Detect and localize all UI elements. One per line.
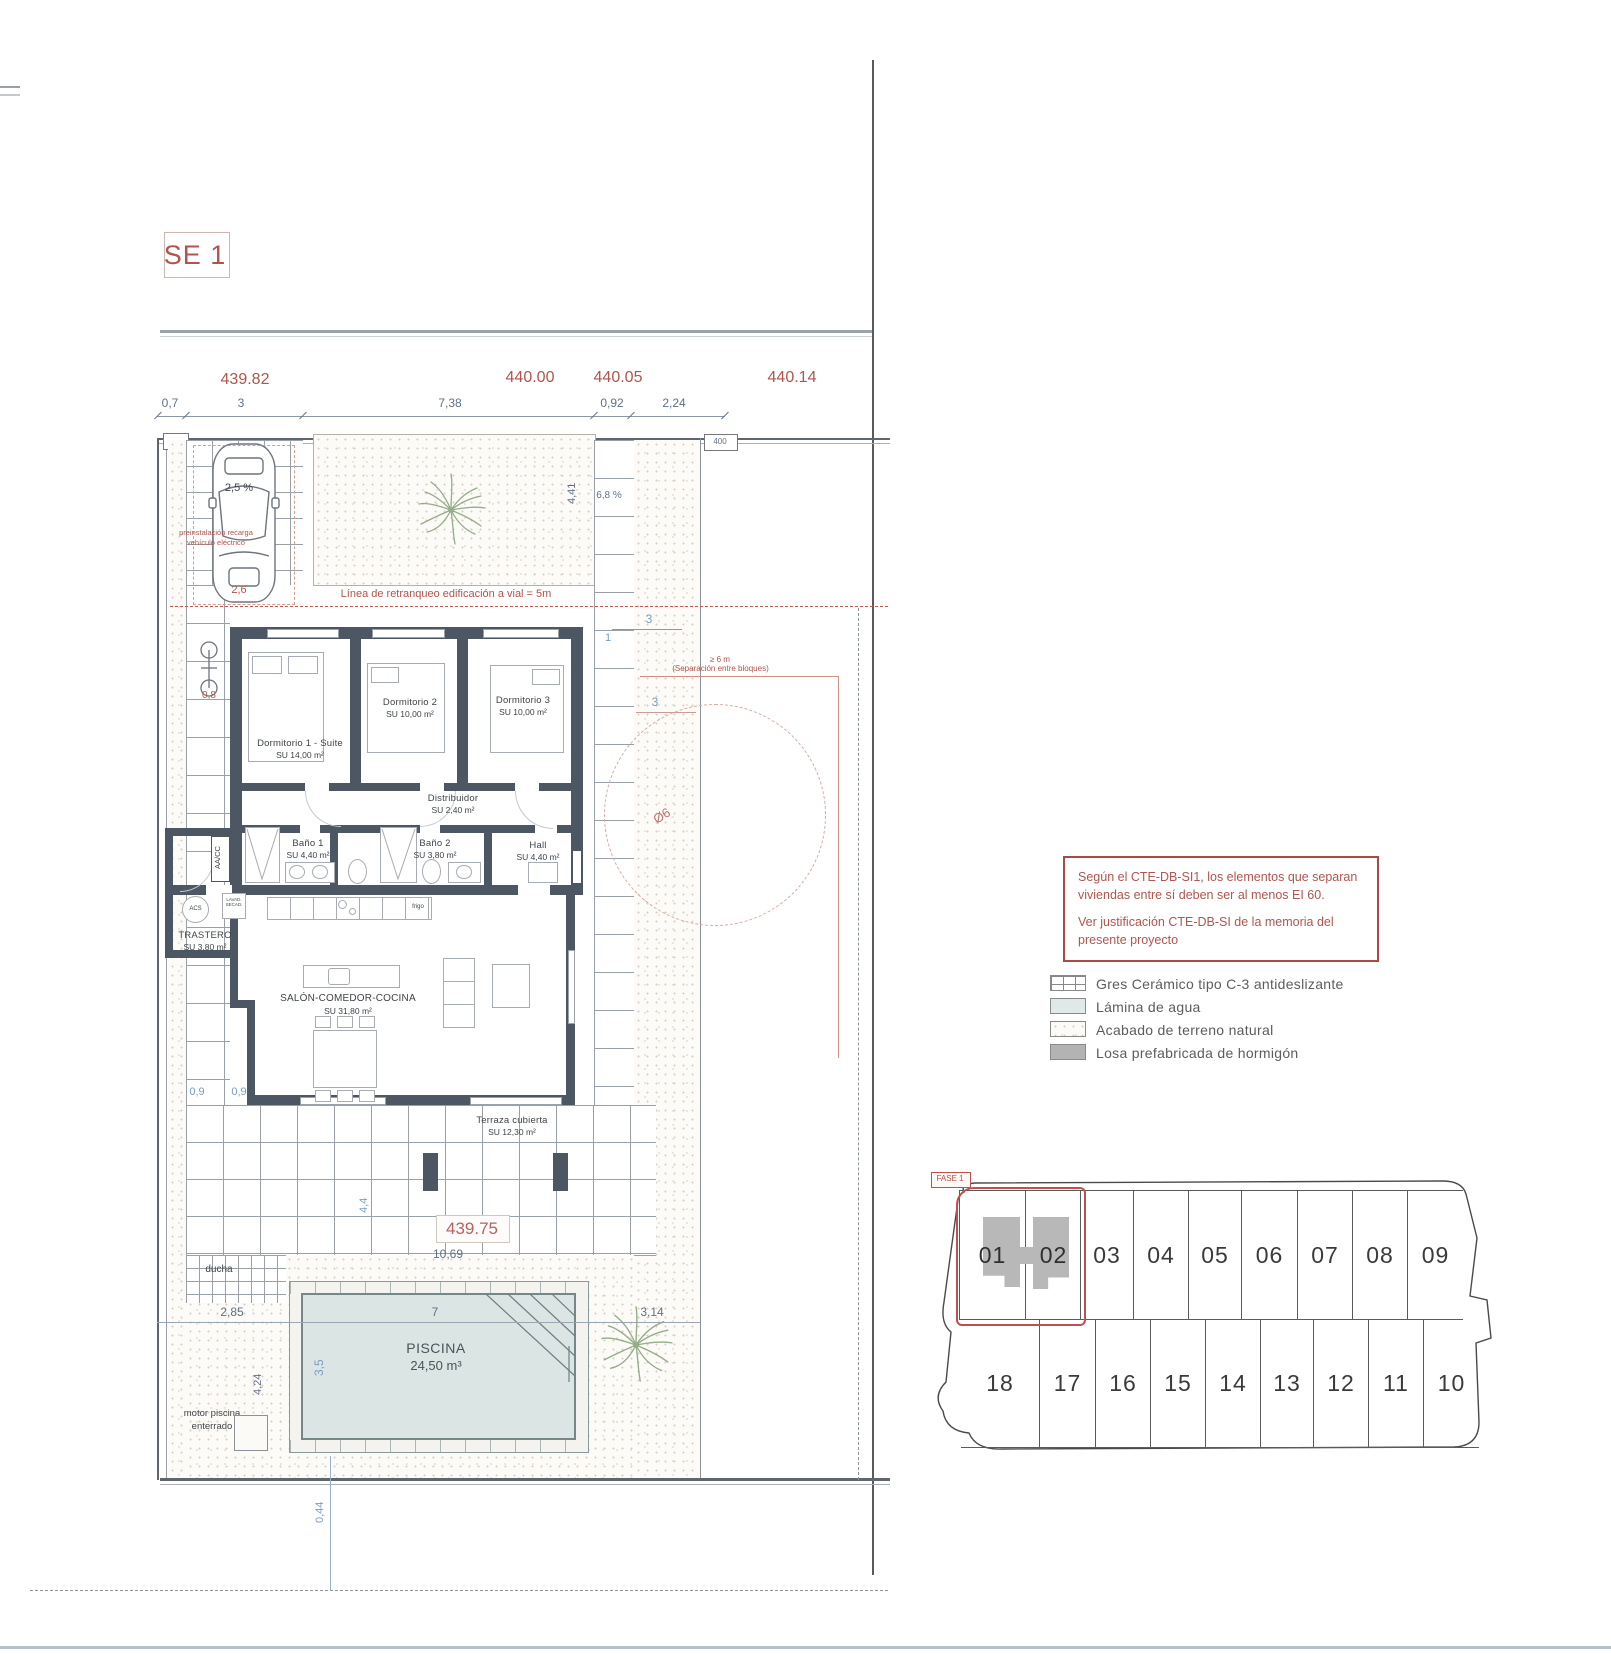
terrace-pillar bbox=[553, 1153, 568, 1191]
dim-0-92: 0,92 bbox=[592, 396, 632, 411]
legend-swatch-terrain bbox=[1050, 1021, 1086, 1037]
retranqueo-dashed-line bbox=[170, 606, 888, 607]
top-dim-line bbox=[157, 416, 725, 417]
hob-burner bbox=[349, 908, 356, 915]
dim-3-5: 3,5 bbox=[312, 1346, 327, 1390]
window bbox=[483, 629, 559, 638]
plot-right-boundary bbox=[700, 438, 701, 1480]
chair bbox=[337, 1016, 353, 1028]
pool-steps bbox=[486, 1294, 575, 1382]
plot-cell-14: 14 bbox=[1206, 1320, 1261, 1448]
dim-3b-line bbox=[636, 712, 696, 713]
legend: Gres Cerámico tipo C-3 antideslizante Lá… bbox=[1050, 975, 1380, 1065]
terrace-tiles bbox=[186, 1105, 656, 1256]
room-label-salon: SALÓN-COMEDOR-COCINA SU 31,80 m² bbox=[268, 993, 428, 1016]
kitchen-island bbox=[303, 965, 400, 988]
sofa-cushion-line bbox=[444, 981, 474, 982]
pillow bbox=[288, 656, 318, 674]
legend-swatch-concrete bbox=[1050, 1044, 1086, 1060]
dining-table bbox=[313, 1030, 377, 1088]
window bbox=[372, 629, 445, 638]
dim-3: 3 bbox=[226, 396, 256, 411]
partition-b2-hall bbox=[484, 825, 492, 885]
tree-icon bbox=[398, 460, 504, 560]
room-label-hall: Hall SU 4,40 m² bbox=[498, 840, 578, 863]
acs-label: ACS bbox=[182, 906, 209, 913]
plot-cell-10: 10 bbox=[1424, 1320, 1479, 1448]
dim-10-69: 10,69 bbox=[418, 1247, 478, 1262]
sink bbox=[289, 865, 305, 879]
separation-note-2: (Separación entre bloques) bbox=[648, 664, 793, 674]
legend-label-tile: Gres Cerámico tipo C-3 antideslizante bbox=[1096, 976, 1344, 992]
door-gap bbox=[515, 783, 539, 791]
motor-box bbox=[234, 1415, 268, 1451]
sofa bbox=[443, 958, 475, 1028]
sink bbox=[456, 865, 472, 879]
plot-cell-03: 03 bbox=[1081, 1190, 1134, 1320]
plot-cell-11: 11 bbox=[1369, 1320, 1424, 1448]
legend-label-concrete: Losa prefabricada de hormigón bbox=[1096, 1045, 1299, 1061]
dim-4-4: 4,4 bbox=[358, 1185, 372, 1225]
wall-right bbox=[571, 627, 583, 845]
separation-line-h bbox=[640, 676, 838, 677]
room-label-terraza: Terraza cubierta SU 12,30 m² bbox=[460, 1115, 564, 1138]
dim-0-9-b: 0,9 bbox=[224, 1086, 254, 1100]
dim-0-9-a: 0,9 bbox=[182, 1086, 212, 1100]
dim-4-24: 4,24 bbox=[252, 1360, 266, 1408]
chair bbox=[359, 1090, 375, 1102]
chair bbox=[359, 1016, 375, 1028]
chair bbox=[337, 1090, 353, 1102]
garage-slope-label: 2,5 % bbox=[214, 482, 264, 496]
plot-cell-18: 18 bbox=[961, 1320, 1040, 1448]
fase1-label: FASE 1 bbox=[931, 1174, 969, 1184]
legend-swatch-tile bbox=[1050, 975, 1086, 991]
plot-left-boundary-2 bbox=[166, 438, 167, 1480]
fire-note-box: Según el CTE-DB-SI1, los elementos que s… bbox=[1063, 856, 1379, 962]
wall-left bbox=[230, 627, 242, 895]
dim-2-6: 2,6 bbox=[222, 584, 256, 598]
dim-1-right: 1 bbox=[596, 632, 620, 646]
window bbox=[568, 950, 575, 1024]
dim-3-right-a: 3 bbox=[634, 612, 664, 627]
hall-cabinet bbox=[528, 862, 558, 883]
fridge-label: frigo bbox=[406, 904, 430, 911]
dim-3-14: 3,14 bbox=[630, 1305, 674, 1320]
separation-circle bbox=[604, 704, 826, 926]
elev-terrace: 439.75 bbox=[436, 1218, 508, 1239]
recarga-label: preinstalación recarga vehículo eléctric… bbox=[170, 528, 262, 548]
plot-cell-09: 09 bbox=[1408, 1190, 1463, 1320]
sheet-bottom-edge bbox=[0, 1646, 1611, 1649]
sofa-cushion-line bbox=[444, 1004, 474, 1005]
side-slope-label: 6,8 % bbox=[588, 490, 630, 503]
pillow bbox=[371, 667, 399, 683]
hob-burner bbox=[338, 900, 347, 909]
room-label-dorm3: Dormitorio 3 SU 10,00 m² bbox=[473, 695, 573, 718]
aacc-label: AA/CC bbox=[213, 838, 222, 878]
plot-cell-15: 15 bbox=[1151, 1320, 1206, 1448]
legend-swatch-water bbox=[1050, 998, 1086, 1014]
pillow bbox=[252, 656, 282, 674]
room-label-bano2: Baño 2 SU 3,80 m² bbox=[395, 838, 475, 861]
plot-cell-17: 17 bbox=[1040, 1320, 1096, 1448]
dim-7-38: 7,38 bbox=[428, 396, 472, 411]
fire-note-line1: Según el CTE-DB-SI1, los elementos que s… bbox=[1078, 868, 1364, 904]
dim-2-24: 2,24 bbox=[652, 396, 696, 411]
sink bbox=[312, 865, 328, 879]
plot-cell-05: 05 bbox=[1189, 1190, 1242, 1320]
pool-dim-line bbox=[157, 1322, 700, 1323]
dim-3-right-b: 3 bbox=[640, 695, 670, 710]
dim-tick bbox=[721, 412, 729, 420]
chair bbox=[315, 1016, 331, 1028]
terrace-pillar bbox=[423, 1153, 438, 1191]
elevation-440-14: 440.14 bbox=[752, 368, 832, 388]
plot-cell-04: 04 bbox=[1134, 1190, 1189, 1320]
plot-cell-13: 13 bbox=[1261, 1320, 1314, 1448]
island-sink bbox=[328, 968, 350, 985]
lower-dashed-boundary bbox=[30, 1590, 888, 1591]
header-rule-2 bbox=[160, 336, 872, 337]
elevation-439-82: 439.82 bbox=[205, 370, 285, 390]
legend-label-terrain: Acabado de terreno natural bbox=[1096, 1022, 1273, 1038]
plot-cell-06: 06 bbox=[1242, 1190, 1298, 1320]
plot-left-boundary bbox=[157, 438, 159, 1480]
dim-0-7: 0,7 bbox=[152, 396, 188, 411]
room-label-dorm1: Dormitorio 1 - Suite SU 14,00 m² bbox=[240, 738, 360, 761]
room-label-dorm2: Dormitorio 2 SU 10,00 m² bbox=[360, 697, 460, 720]
marker-box-400-label: 400 bbox=[704, 437, 736, 447]
plot-cell-12: 12 bbox=[1314, 1320, 1369, 1448]
room-label-bano1: Baño 1 SU 4,40 m² bbox=[268, 838, 348, 861]
right-dashed-boundary bbox=[858, 608, 859, 1480]
door-arc bbox=[515, 791, 553, 829]
separation-line-v bbox=[838, 676, 839, 1058]
room-label-distribuidor: Distribuidor SU 2,40 m² bbox=[403, 793, 503, 816]
door-arc bbox=[305, 791, 341, 827]
dim-7: 7 bbox=[420, 1305, 450, 1320]
plot-bottom-boundary bbox=[160, 1478, 890, 1481]
dim-0-44-line bbox=[330, 1456, 331, 1590]
dim-3a-line bbox=[612, 629, 682, 630]
drawing-sheet: SE 1 439.82 440.00 440.05 440.14 0,7 3 7… bbox=[0, 0, 1611, 1655]
vertical-divider bbox=[872, 60, 874, 1575]
room-label-piscina: PISCINA 24,50 m³ bbox=[376, 1340, 496, 1374]
door-gap bbox=[300, 825, 320, 833]
parking-dashed-outline bbox=[193, 445, 295, 605]
door-gap bbox=[420, 783, 444, 791]
door-gap bbox=[305, 783, 329, 791]
elevation-440-00: 440.00 bbox=[490, 368, 570, 388]
elevation-440-05: 440.05 bbox=[578, 368, 658, 388]
section-title: SE 1 bbox=[160, 239, 230, 273]
frame-stub-1 bbox=[0, 86, 20, 88]
fase1-outline bbox=[956, 1187, 1086, 1326]
armchair bbox=[492, 964, 530, 1008]
retranqueo-label: Línea de retranqueo edificación a vial =… bbox=[316, 588, 576, 602]
header-rule-1 bbox=[160, 330, 872, 333]
plot-cell-08: 08 bbox=[1353, 1190, 1408, 1320]
window bbox=[470, 1097, 562, 1105]
dim-4-41: 4,41 bbox=[566, 470, 580, 516]
plot-cell-16: 16 bbox=[1096, 1320, 1151, 1448]
shower-tiles bbox=[186, 1255, 286, 1303]
chair bbox=[315, 1090, 331, 1102]
room-label-trastero: TRASTERO SU 3,80 m² bbox=[165, 930, 245, 953]
window bbox=[267, 629, 339, 638]
fire-note-line2: Ver justificación CTE-DB-SI de la memori… bbox=[1078, 913, 1364, 949]
wall-trastero-top bbox=[165, 828, 233, 836]
plot-bottom-boundary-2 bbox=[160, 1484, 890, 1485]
toilet bbox=[422, 859, 441, 884]
legend-label-water: Lámina de agua bbox=[1096, 999, 1201, 1015]
dim-2-85: 2,85 bbox=[210, 1305, 254, 1320]
toilet bbox=[348, 859, 367, 884]
plot-cell-07: 07 bbox=[1298, 1190, 1353, 1320]
washer-dryer-label: LAVAD. SECAD. bbox=[219, 898, 249, 908]
dim-0-44: 0,44 bbox=[314, 1490, 328, 1534]
ducha-label: ducha bbox=[196, 1264, 242, 1277]
pillow bbox=[532, 669, 560, 685]
opening-hall-salon bbox=[518, 885, 550, 895]
dim-0-8: 0,8 bbox=[194, 690, 224, 703]
frame-stub-2 bbox=[0, 94, 20, 96]
